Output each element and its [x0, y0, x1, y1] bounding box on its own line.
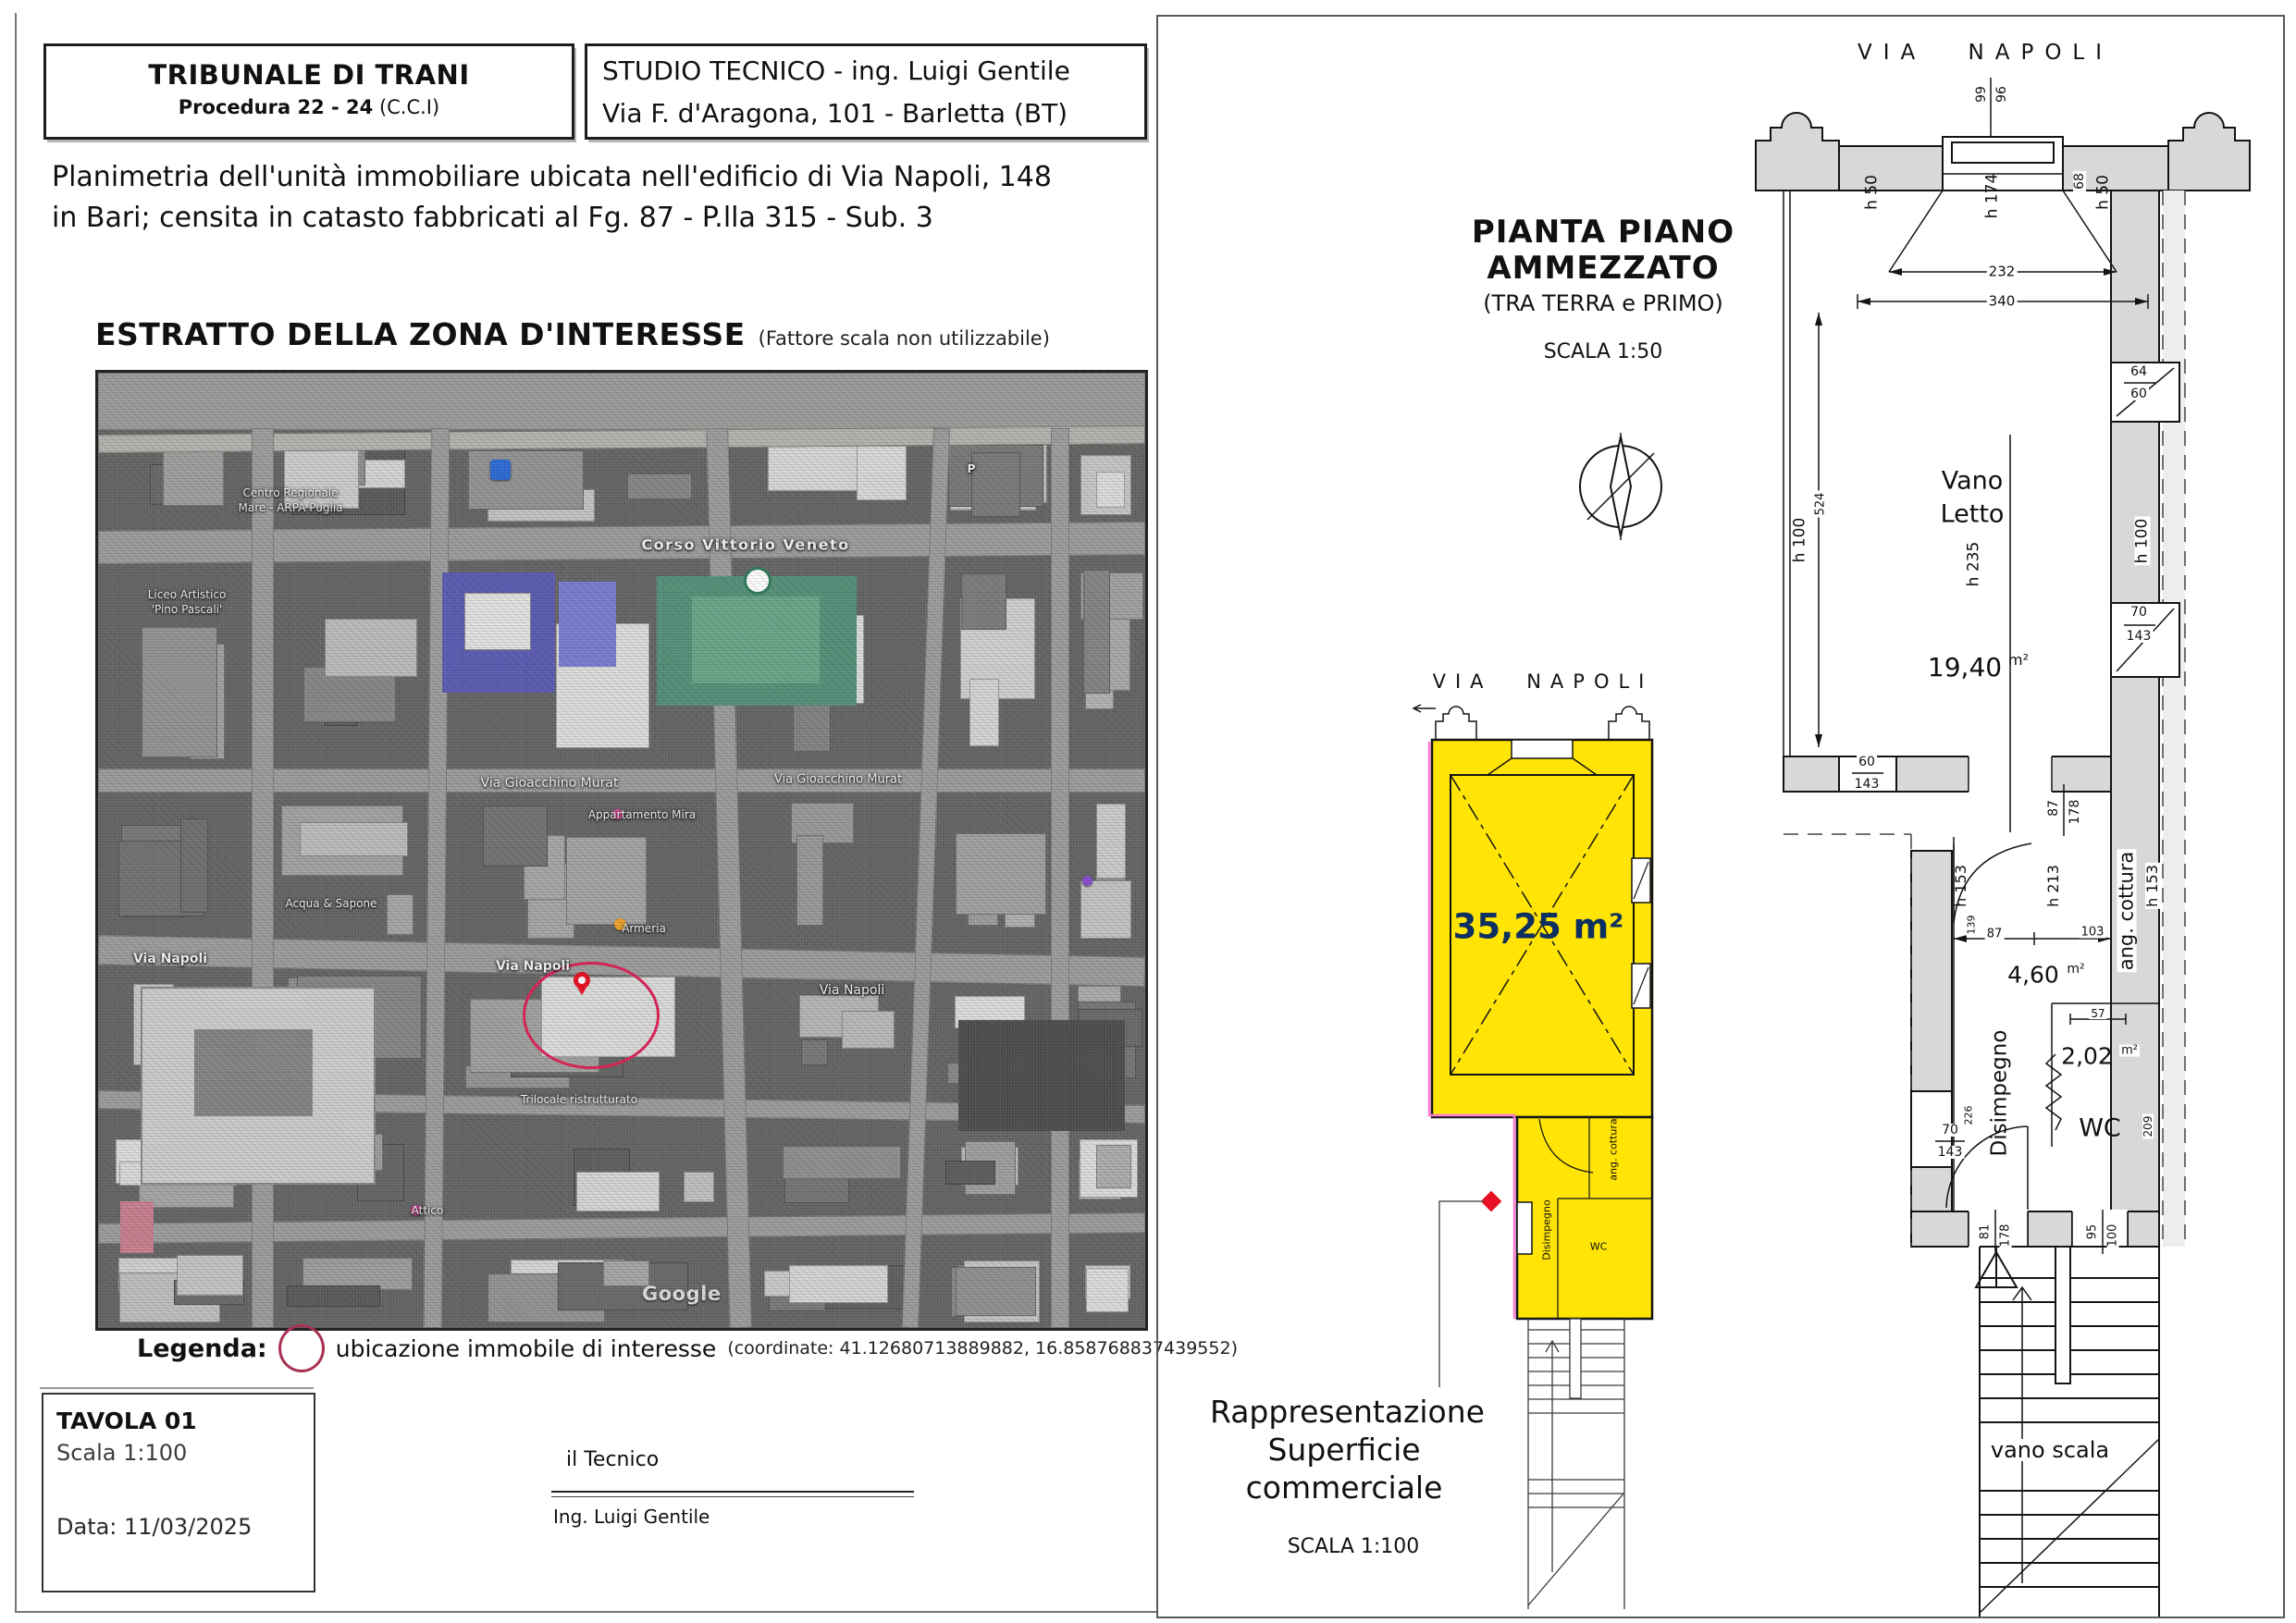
map-building-block: [796, 835, 823, 926]
street-label: Via Gioacchino Murat: [774, 773, 902, 787]
legend-text: ubicazione immobile di interesse: [336, 1335, 717, 1362]
map-building-block: [956, 1267, 1035, 1316]
plan-street-label: VIA NAPOLI: [1858, 41, 2113, 65]
map-building-block: [1096, 472, 1125, 509]
legend-label: Legenda:: [137, 1334, 267, 1363]
legend-row: Legenda: ubicazione immobile di interess…: [137, 1324, 1238, 1372]
map-building-block: [576, 1172, 660, 1211]
commercial-caption: Rappresentazione Superficie commerciale: [1210, 1393, 1478, 1506]
map-building-block: [142, 627, 216, 756]
map-building-block: [163, 449, 224, 507]
court-procedure: Procedura 22 - 24 (C.C.I): [46, 96, 572, 118]
planimetry-sheet: TRIBUNALE DI TRANI Procedura 22 - 24 (C.…: [0, 0, 2296, 1623]
location-pin-icon: [574, 972, 590, 989]
map-building-block: [627, 473, 691, 499]
map-building-block: [1096, 1145, 1131, 1188]
map-road-v1: [252, 428, 274, 1328]
plan-subtitle: (TRA TERRA e PRIMO): [1427, 290, 1779, 316]
shop-icon: [490, 460, 511, 480]
street-label: Corso Vittorio Veneto: [641, 536, 849, 554]
map-courtyard: [194, 1029, 313, 1116]
signature-role: il Tecnico: [566, 1448, 659, 1471]
map-road-v2: [424, 428, 450, 1328]
google-watermark: Google: [642, 1283, 722, 1305]
legend-circle-icon: [278, 1324, 325, 1372]
poi-label: Attico: [412, 1204, 444, 1217]
poi-label: Acqua & Sapone: [285, 897, 376, 910]
street-label: Via Napoli: [496, 959, 570, 974]
map-building-block: [842, 1011, 894, 1049]
street-label: Via Napoli: [820, 983, 884, 998]
map-building-block: [566, 837, 647, 925]
map-building-block: [956, 833, 1046, 915]
poi-label: 'Pino Pascali': [152, 603, 223, 616]
street-label: Via Gioacchino Murat: [481, 776, 619, 791]
caption-line1: Rappresentazione: [1210, 1393, 1478, 1431]
caption-line2: Superficie: [1210, 1431, 1478, 1469]
map-green-inner: [692, 596, 820, 683]
plan-scale: SCALA 1:50: [1427, 340, 1779, 363]
map-white-roof: [464, 593, 531, 650]
map-building-block: [468, 450, 584, 510]
titleblock: TAVOLA 01 Scala 1:100 Data: 11/03/2025: [42, 1393, 315, 1592]
map-building-block: [1080, 880, 1132, 939]
map-building-block: [684, 1172, 713, 1202]
map-building-block: [1083, 570, 1109, 694]
left-sheet-border-bottom: [15, 1611, 1156, 1613]
map-building-block: [177, 1255, 243, 1297]
poi-label: Liceo Artistico: [148, 588, 227, 601]
location-circle-marker: [523, 962, 660, 1069]
plan-title-block: PIANTA PIANO AMMEZZATO (TRA TERRA e PRIM…: [1427, 215, 1779, 363]
map-road-v4: [902, 428, 950, 1328]
map-dark-block: [958, 1020, 1125, 1131]
map-building-block: [961, 573, 1006, 630]
map-building-block: [300, 822, 409, 855]
left-sheet-border-left: [15, 13, 17, 1613]
titleblock-topline: [40, 1387, 314, 1389]
poi-label: Mare - ARPA Puglia: [238, 501, 342, 514]
map-sea-band: [98, 373, 1145, 430]
map-title: ESTRATTO DELLA ZONA D'INTERESSE: [95, 316, 746, 352]
studio-name: STUDIO TECNICO - ing. Luigi Gentile: [602, 54, 1144, 89]
map-road-v5: [1051, 428, 1069, 1328]
map-building-block: [969, 679, 999, 746]
description-line2: in Bari; censita in catasto fabbricati a…: [52, 198, 1153, 239]
map-building-block: [801, 1039, 828, 1065]
map-building-block: [1096, 804, 1126, 879]
poi-label: P: [968, 462, 976, 475]
court-header-box: TRIBUNALE DI TRANI Procedura 22 - 24 (C.…: [43, 43, 574, 140]
map-building-block: [387, 894, 414, 935]
poi-label: Centro Regionale: [242, 486, 338, 499]
court-title: TRIBUNALE DI TRANI: [46, 59, 572, 91]
plan-title-line2: AMMEZZATO: [1427, 251, 1779, 287]
poi-dot-purple: [1082, 876, 1092, 886]
map-building-block: [857, 446, 907, 500]
map-building-block: [945, 1161, 995, 1186]
description-line1: Planimetria dell'unità immobiliare ubica…: [52, 157, 1153, 198]
poi-label: Appartamento Mira: [588, 808, 696, 821]
poi-label: Armeria: [622, 922, 666, 935]
titleblock-date: Data: 11/03/2025: [56, 1514, 314, 1540]
map-purple-building-2: [559, 582, 616, 667]
studio-header-box: STUDIO TECNICO - ing. Luigi Gentile Via …: [585, 43, 1147, 140]
map-building-block: [325, 619, 417, 677]
map-building-block: [483, 805, 548, 867]
caption-line3: commerciale: [1210, 1469, 1478, 1506]
map-building-block: [287, 1285, 379, 1307]
map-building-block: [1086, 1268, 1129, 1312]
commercial-street-label: VIA NAPOLI: [1433, 670, 1654, 693]
commercial-scale: SCALA 1:100: [1265, 1535, 1441, 1558]
map-building-block: [180, 818, 208, 913]
signature-line: [551, 1491, 914, 1497]
map-section-title-row: ESTRATTO DELLA ZONA D'INTERESSE (Fattore…: [95, 316, 1050, 352]
titleblock-tavola: TAVOLA 01: [56, 1408, 314, 1434]
map-green-poi-icon: [744, 567, 772, 595]
map-building-block: [783, 1146, 902, 1179]
plan-title-line1: PIANTA PIANO: [1427, 215, 1779, 251]
map-pink-building: [120, 1201, 154, 1253]
map-building-block: [789, 1265, 888, 1303]
satellite-map: Corso Vittorio VenetoVia Gioacchino Mura…: [95, 370, 1148, 1331]
signature-name: Ing. Luigi Gentile: [553, 1506, 710, 1528]
studio-address: Via F. d'Aragona, 101 - Barletta (BT): [602, 96, 1144, 131]
description-paragraph: Planimetria dell'unità immobiliare ubica…: [52, 157, 1153, 239]
poi-label: Trilocale ristrutturato: [521, 1093, 637, 1106]
titleblock-scale: Scala 1:100: [56, 1440, 314, 1466]
map-building-block: [971, 452, 1020, 516]
street-label: Via Napoli: [133, 952, 207, 966]
map-title-note: (Fattore scala non utilizzabile): [759, 327, 1050, 350]
